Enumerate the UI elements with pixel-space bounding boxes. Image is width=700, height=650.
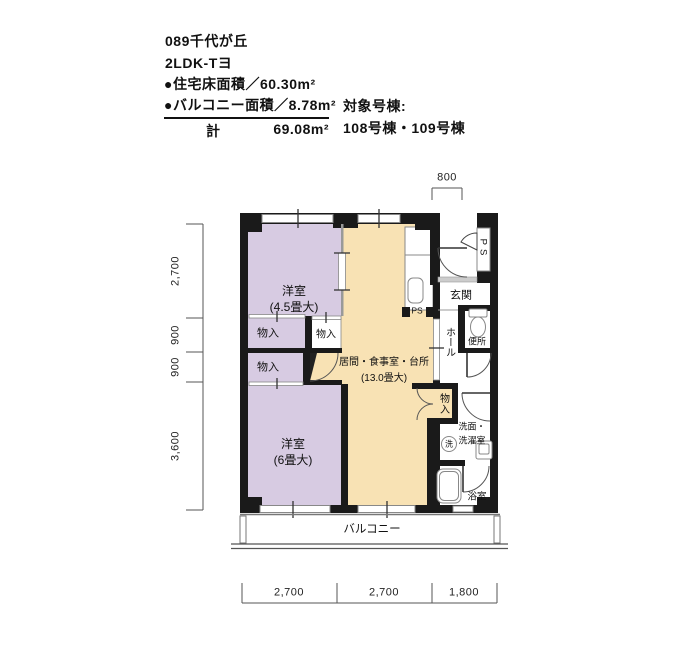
window-balcony-bedroom xyxy=(260,506,330,513)
toilet-label: 便所 xyxy=(468,335,486,350)
ldk-label: 居間・食事室・台所 (13.0畳大) xyxy=(339,355,429,387)
corner-tr xyxy=(477,213,498,228)
entrance-label: 玄関 xyxy=(450,289,472,304)
washroom-line2: 洗濯室 xyxy=(458,434,485,448)
total-value: 69.08m² xyxy=(273,121,329,141)
ps-kitchen-stub-left xyxy=(402,307,410,317)
ps-bottom-block xyxy=(477,271,498,283)
kitchen-sink xyxy=(408,278,423,303)
storage2-label: 物入 xyxy=(316,328,336,343)
storage2-west-wall xyxy=(305,316,312,352)
storage3-front xyxy=(249,382,303,386)
wall-left xyxy=(240,213,248,513)
bedroom-large-east-wall xyxy=(341,384,348,505)
bedroom-small-size: (4.5畳大) xyxy=(270,299,319,315)
building-label: 対象号棟: xyxy=(343,96,406,116)
ldk-east-wall-top xyxy=(433,224,440,310)
genkan-threshold xyxy=(438,277,477,282)
dim-bottom-2700b: 2,700 xyxy=(369,586,399,601)
washroom-south-wall xyxy=(427,460,465,466)
total-row: 計 69.08m² xyxy=(164,121,329,141)
ldk-name: 居間・食事室・台所 xyxy=(339,355,429,371)
slide-bedroom-ldk xyxy=(339,253,346,290)
corner-tl xyxy=(240,213,262,232)
dim-left-2700: 2,700 xyxy=(169,256,184,286)
balcony-area-line: ●バルコニー面積／8.78m² xyxy=(164,95,336,115)
washing-machine-label: 洗 xyxy=(445,437,453,452)
ldk-east-stub1 xyxy=(433,305,440,319)
toilet-tank xyxy=(469,309,487,317)
total-underline xyxy=(164,117,329,119)
balcony-label: バルコニー xyxy=(343,523,400,538)
bathtub-inner xyxy=(440,472,459,501)
dim-bottom-1800: 1,800 xyxy=(449,586,479,601)
ps-shaft-label: PS xyxy=(476,239,491,260)
balcony-post-right xyxy=(494,516,500,543)
toilet-west-wall xyxy=(458,305,465,352)
ldk-size: (13.0畳大) xyxy=(339,371,429,387)
storage3-label: 物入 xyxy=(257,361,279,376)
bedroom-small-label: 洋室 (4.5畳大) xyxy=(270,283,319,315)
bedroom-large-size: (6畳大) xyxy=(274,452,313,468)
ps-kitchen-stub-right xyxy=(426,307,433,317)
bedroom-small-name: 洋室 xyxy=(270,283,319,299)
balcony-post-left xyxy=(240,516,246,543)
hall-label: ホール xyxy=(442,327,457,357)
dim-top-800: 800 xyxy=(437,171,457,186)
top-pier xyxy=(333,213,358,228)
dim-left-900a: 900 xyxy=(169,325,184,345)
plan-type: 2LDK-Tヨ xyxy=(165,53,232,73)
storage1-label: 物入 xyxy=(257,327,279,342)
storage4-label: 物入 xyxy=(436,393,451,415)
dim-left-3600: 3,600 xyxy=(169,431,184,461)
building-value: 108号棟・109号棟 xyxy=(343,118,465,138)
wall-right xyxy=(490,213,498,513)
bath-west-wall xyxy=(427,466,435,505)
plan-code-title: 089千代が丘 xyxy=(165,31,248,51)
bath-vent xyxy=(453,506,473,512)
storage-mid-wall xyxy=(248,348,342,353)
floor-area-line: ●住宅床面積／60.30m² xyxy=(164,74,316,94)
washroom-west-wall xyxy=(427,418,435,466)
storage4-east-wall xyxy=(452,383,458,424)
slide-hall-ldk xyxy=(434,319,440,380)
bedroom-large-label: 洋室 (6畳大) xyxy=(274,436,313,468)
ps-kitchen-label: PS xyxy=(411,304,422,319)
dim-left-900b: 900 xyxy=(169,357,184,377)
bath-label: 浴室 xyxy=(467,490,486,505)
dim-bottom-2700a: 2,700 xyxy=(274,586,304,601)
floor-plan-page: 089千代が丘 2LDK-Tヨ ●住宅床面積／60.30m² ●バルコニー面積／… xyxy=(0,0,700,650)
total-label: 計 xyxy=(206,121,221,141)
corner-bl xyxy=(240,497,262,513)
washroom-label: 洗面・ 洗濯室 xyxy=(458,421,485,448)
bedroom-large-name: 洋室 xyxy=(274,436,313,452)
washroom-line1: 洗面・ xyxy=(458,421,485,435)
